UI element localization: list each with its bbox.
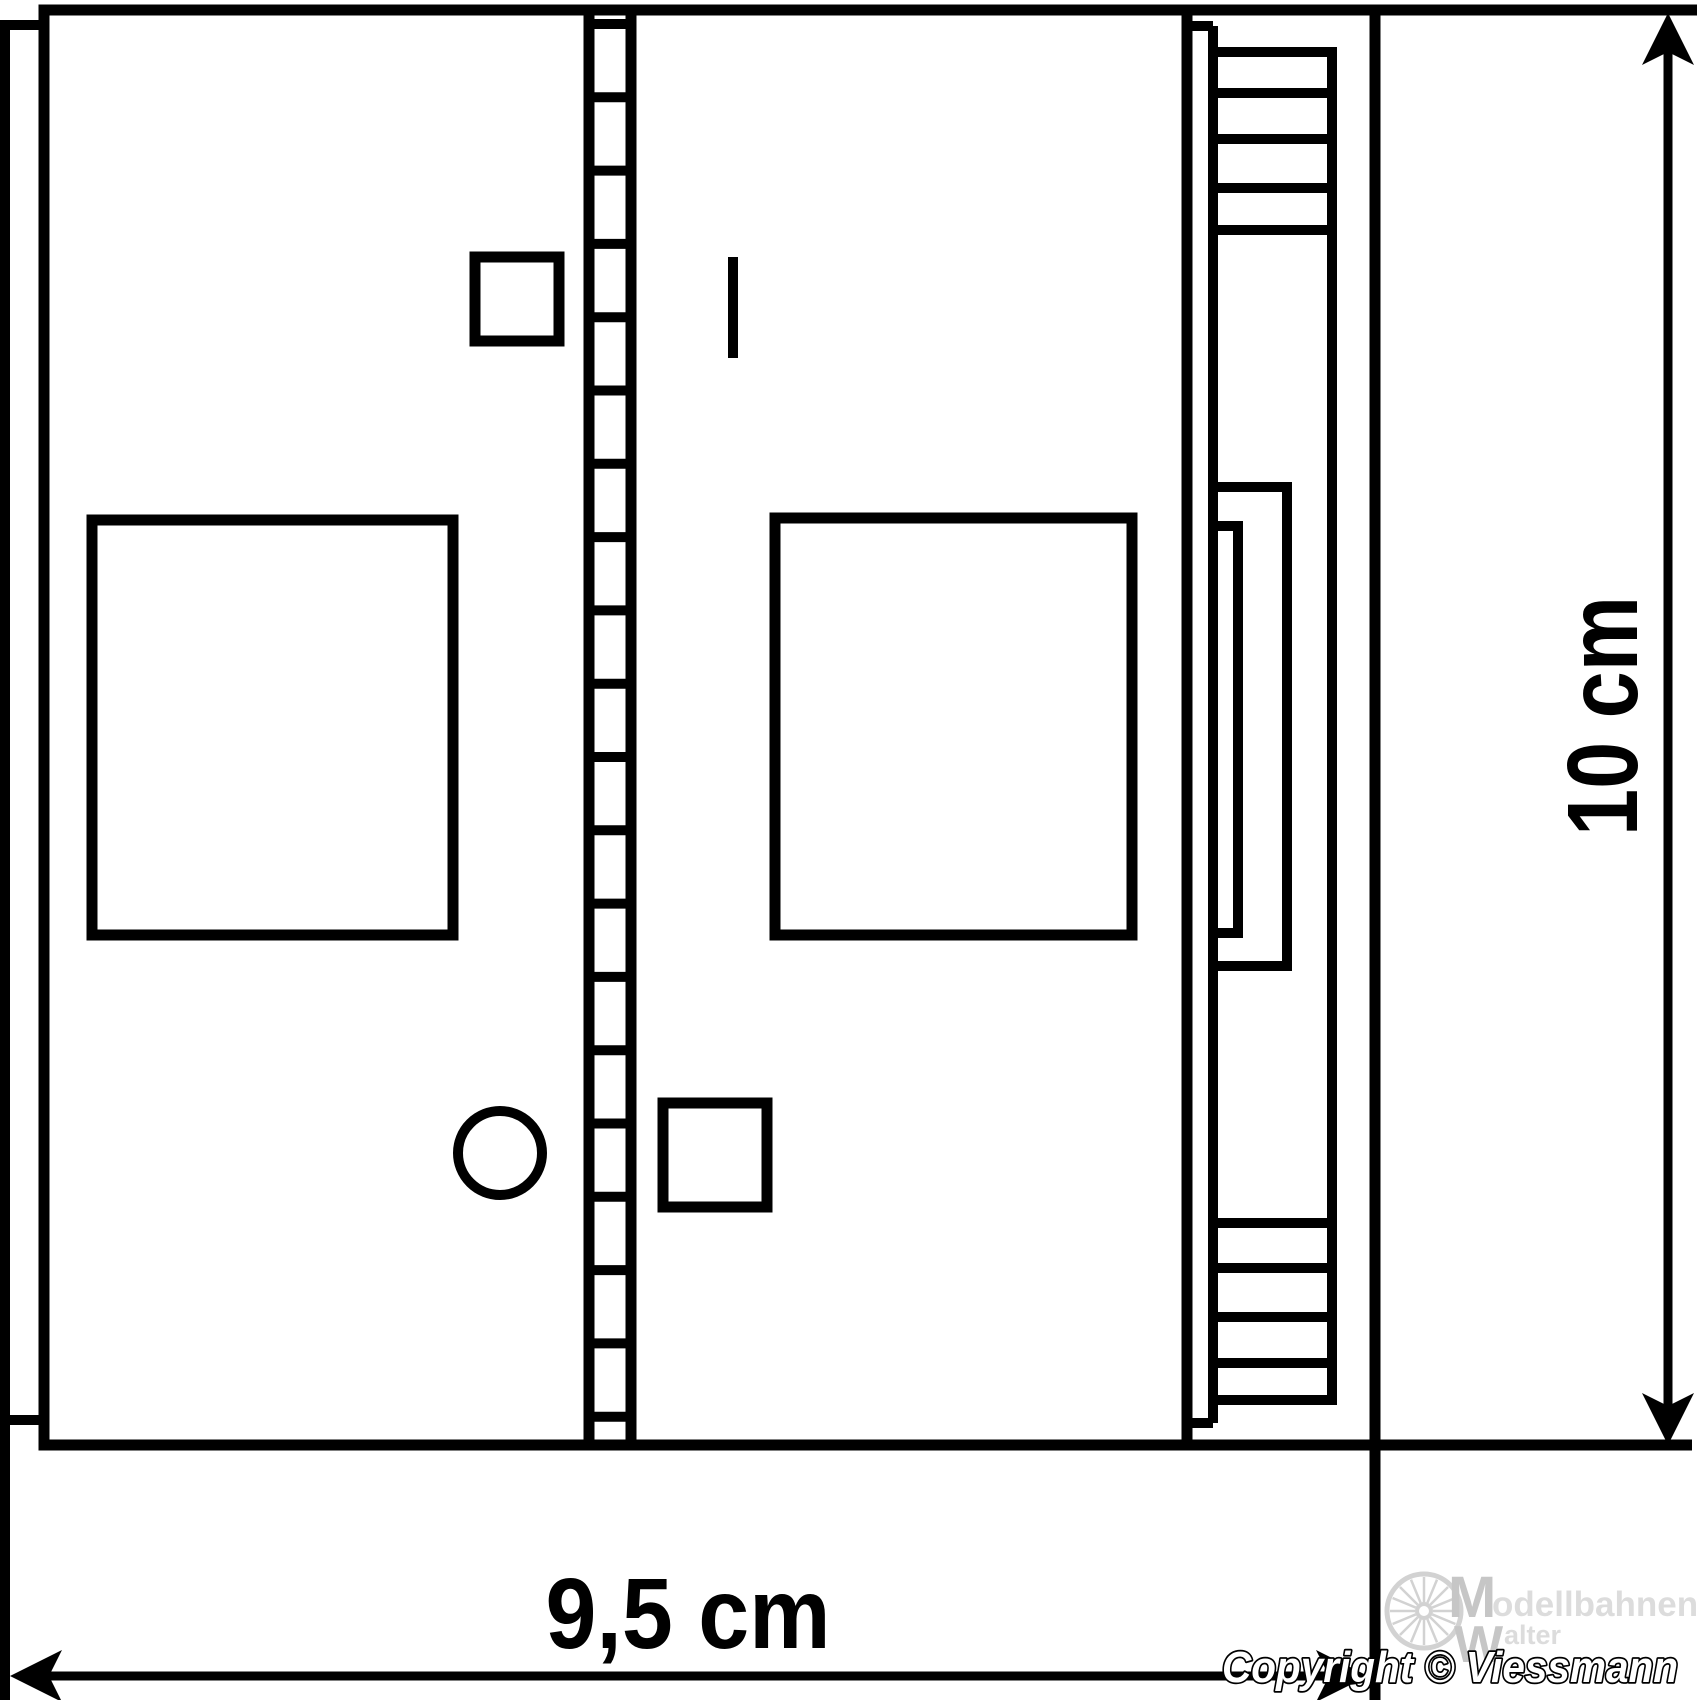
width-dimension-label: 9,5 cm: [546, 1558, 831, 1670]
height-dimension-label: 10 cm: [1547, 596, 1659, 836]
dimension-drawing: 9,5 cm 10 cm M odellbahnen W alter Copyr…: [0, 0, 1700, 1700]
copyright-text: Copyright © Viessmann: [1222, 1643, 1678, 1692]
main-housing: [44, 10, 1187, 1445]
drawing-page: 9,5 cm 10 cm M odellbahnen W alter Copyr…: [0, 0, 1700, 1700]
watermark-text-top: odellbahnen: [1492, 1585, 1698, 1624]
front-view: [0, 10, 1187, 1700]
